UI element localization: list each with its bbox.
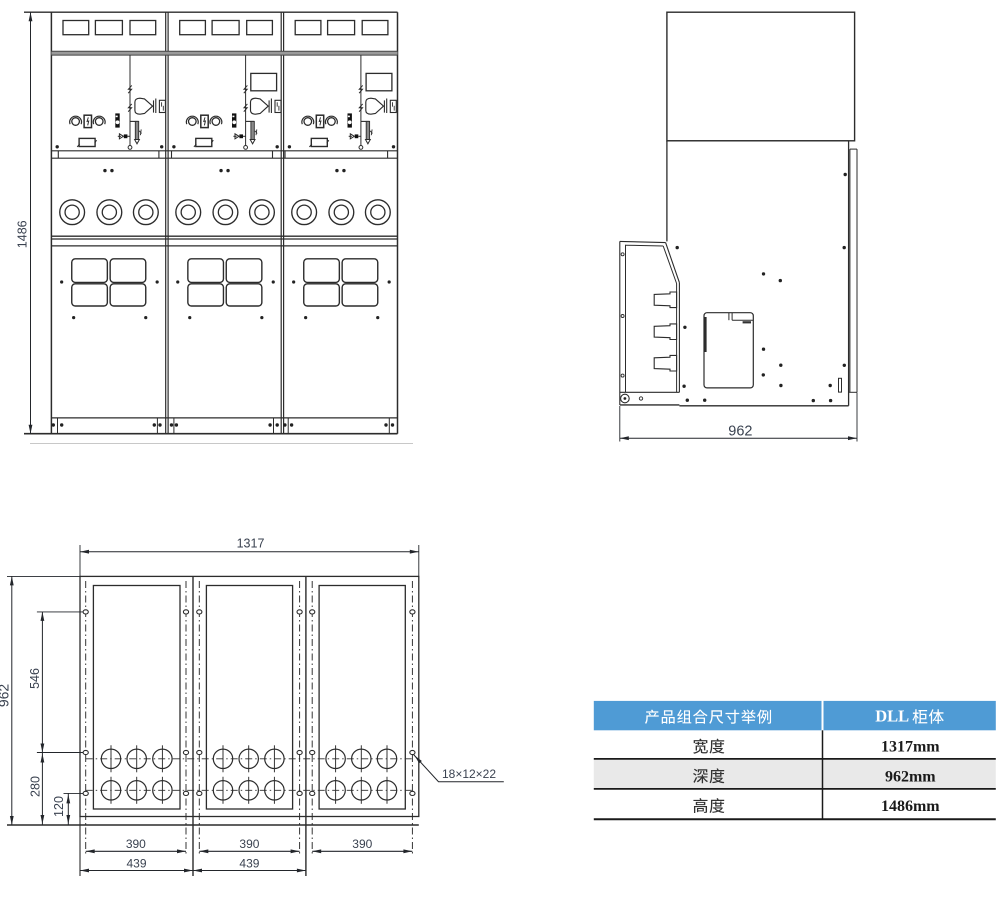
- svg-text:18×12×22: 18×12×22: [442, 767, 496, 781]
- svg-text:390: 390: [126, 837, 146, 851]
- svg-text:390: 390: [352, 837, 372, 851]
- svg-text:1317mm: 1317mm: [881, 739, 940, 756]
- svg-text:1317: 1317: [237, 536, 265, 550]
- svg-text:DLL: DLL: [875, 707, 909, 726]
- svg-text:962: 962: [728, 423, 752, 439]
- svg-text:1486mm: 1486mm: [881, 798, 940, 815]
- svg-text:962: 962: [0, 684, 11, 708]
- svg-text:1486: 1486: [15, 220, 29, 248]
- svg-text:120: 120: [52, 796, 66, 817]
- svg-text:546: 546: [28, 668, 42, 689]
- svg-text:439: 439: [126, 857, 146, 871]
- svg-text:390: 390: [239, 837, 259, 851]
- svg-text:962mm: 962mm: [885, 768, 936, 785]
- svg-text:280: 280: [28, 776, 42, 797]
- svg-text:439: 439: [239, 857, 259, 871]
